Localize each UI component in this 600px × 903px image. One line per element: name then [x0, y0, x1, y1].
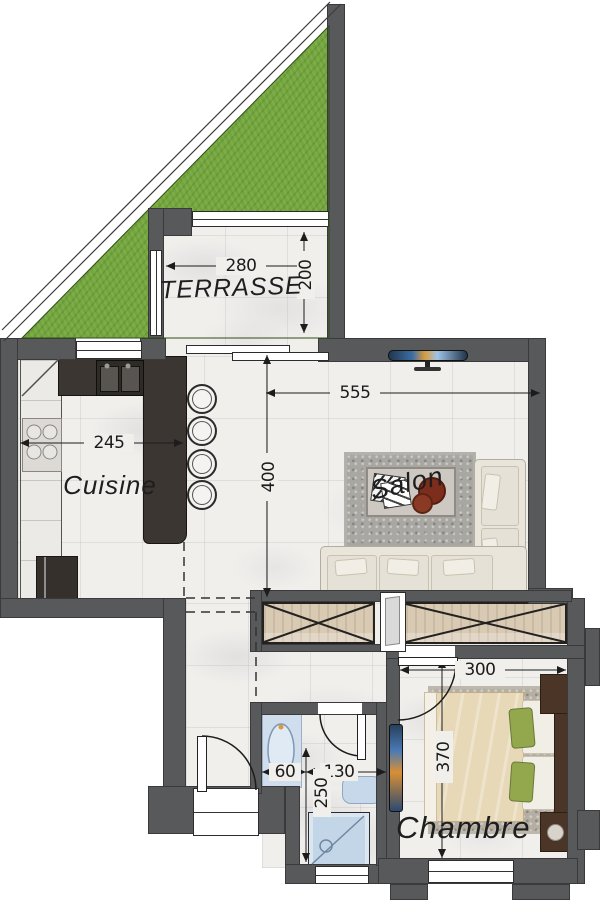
entrance-door-leaf[interactable] [197, 736, 207, 792]
hall-closet [262, 602, 375, 644]
dim-salon-width: 555 [330, 384, 380, 402]
bedroom-closet [404, 602, 567, 644]
tv-stand-neck [425, 360, 430, 367]
wall-pier-right [585, 628, 600, 686]
shower-tray [308, 812, 370, 870]
kitchen-window [76, 341, 142, 359]
bathroom-door-leaf[interactable] [357, 714, 366, 760]
stove [22, 418, 62, 472]
bedroom-door-leaf[interactable] [398, 657, 458, 666]
bar-stool [187, 449, 217, 479]
bedroom-tv [389, 724, 403, 812]
kitchen-counter-bar [143, 356, 187, 544]
sofa-pillow [386, 558, 419, 576]
wall-site-right [327, 4, 345, 340]
kitchen-sink [96, 360, 144, 396]
floor-plan: 280 200 555 400 245 300 370 60 130 250 T… [0, 0, 600, 903]
shower-window [315, 866, 369, 884]
dim-basin: 60 [269, 763, 301, 781]
wall-left [0, 338, 18, 618]
sink-basin-right [121, 366, 140, 392]
accent-pillow-green [509, 761, 536, 803]
nightstand [540, 812, 570, 852]
sink-basin-left [100, 366, 119, 392]
dim-chambre-width: 300 [455, 661, 505, 679]
wall-right [528, 338, 546, 594]
wall-closet-bottom-rail [250, 644, 390, 652]
speaker-icon [547, 824, 564, 841]
chambre-label: Chambre [396, 810, 520, 846]
dim-cuisine-width: 245 [84, 434, 134, 452]
wall-pier-bottom [512, 884, 570, 900]
sofa-pillow [334, 558, 367, 577]
entrance-opening [193, 788, 259, 836]
bathroom-door-opening [318, 703, 362, 714]
cuisine-label: Cuisine [58, 470, 162, 501]
fridge [36, 556, 78, 600]
bar-stool [187, 384, 217, 414]
accent-pillow-green [508, 707, 535, 749]
nightstand [540, 674, 570, 714]
wall-pier-right-low [577, 810, 600, 850]
wall-closet-top-rail [250, 590, 572, 602]
bar-stool [187, 416, 217, 446]
wall-bath-left [250, 702, 262, 794]
terrasse-label: TERRASSE [160, 272, 295, 306]
terrasse-railing [192, 211, 329, 227]
wall-kitchen-bottom [0, 598, 186, 618]
wall-pier-bottom [390, 884, 428, 900]
tv-stand-base [414, 367, 441, 371]
mirror-panel [385, 596, 400, 646]
salon-tv [388, 350, 468, 376]
wall-closet-jamb [250, 590, 262, 652]
sliding-door-panel [232, 352, 329, 361]
sofa-pillow [442, 558, 475, 576]
wall-hall-left [163, 598, 186, 790]
hall-mirror [380, 592, 406, 652]
wall-kitchen-top-right [140, 338, 166, 360]
bar-stool [187, 480, 217, 510]
bedroom-window [428, 860, 514, 883]
dim-bath-depth: 250 [313, 769, 331, 817]
dim-chambre-depth: 370 [435, 731, 453, 783]
dim-salon-depth: 400 [260, 453, 278, 501]
